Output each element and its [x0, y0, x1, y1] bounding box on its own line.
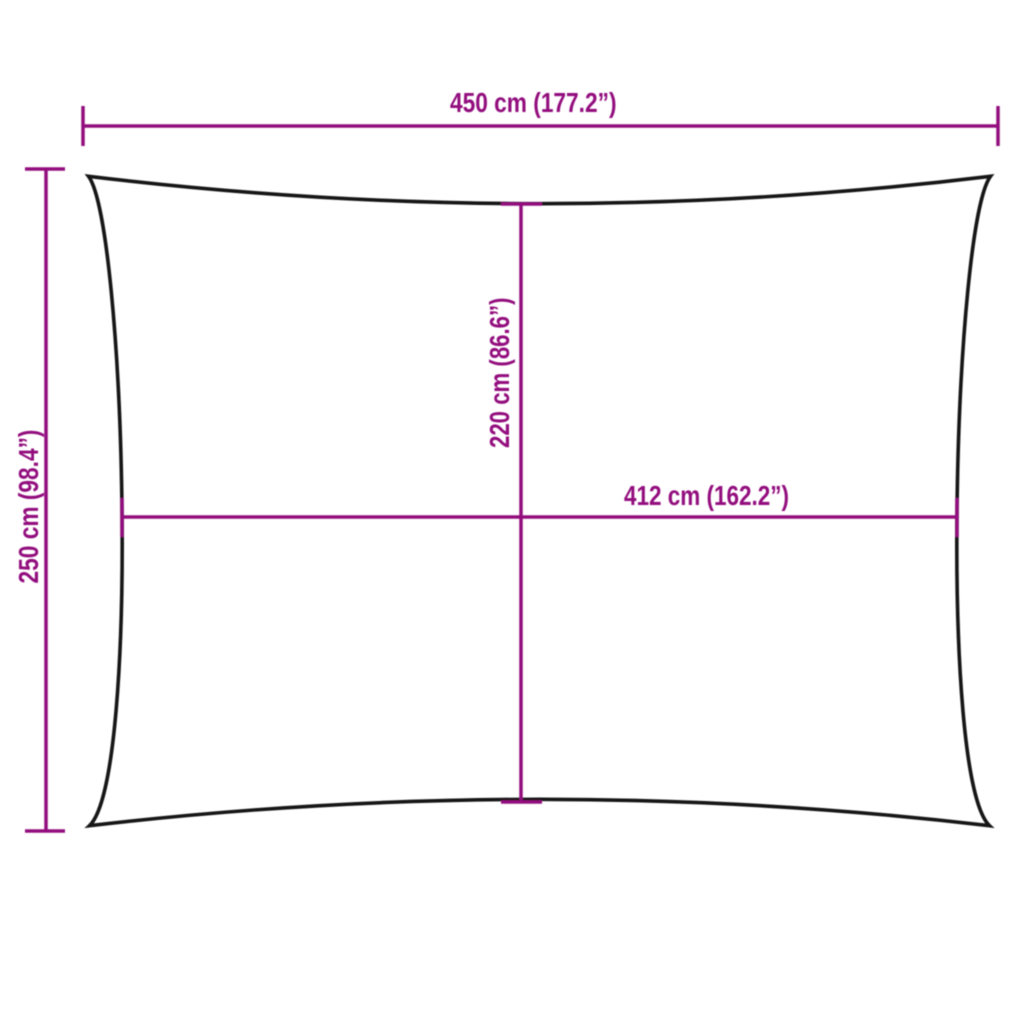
svg-text:412 cm (162.2”): 412 cm (162.2”): [624, 480, 789, 511]
svg-text:450 cm (177.2”): 450 cm (177.2”): [450, 87, 617, 118]
svg-text:250 cm (98.4”): 250 cm (98.4”): [13, 430, 44, 584]
svg-text:220 cm (86.6”): 220 cm (86.6”): [484, 298, 515, 449]
